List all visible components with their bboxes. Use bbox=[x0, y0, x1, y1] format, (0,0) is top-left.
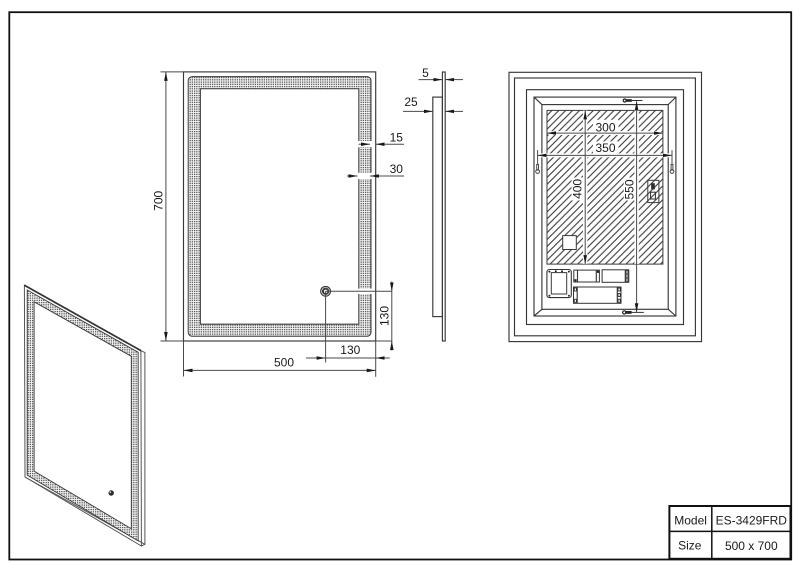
svg-text:Model: Model bbox=[674, 513, 707, 527]
svg-text:30: 30 bbox=[390, 162, 404, 176]
svg-text:400: 400 bbox=[571, 179, 585, 199]
svg-text:300: 300 bbox=[595, 121, 615, 135]
svg-text:5: 5 bbox=[422, 66, 429, 80]
svg-text:700: 700 bbox=[151, 190, 165, 210]
svg-text:130: 130 bbox=[340, 343, 360, 357]
svg-text:ES-3429FRD: ES-3429FRD bbox=[716, 514, 788, 528]
svg-text:130: 130 bbox=[378, 306, 392, 326]
svg-text:500: 500 bbox=[274, 355, 294, 369]
svg-text:15: 15 bbox=[390, 131, 404, 145]
svg-text:500 x 700: 500 x 700 bbox=[725, 539, 778, 553]
svg-text:550: 550 bbox=[623, 179, 637, 199]
svg-text:25: 25 bbox=[404, 95, 418, 109]
svg-text:350: 350 bbox=[595, 141, 615, 155]
svg-text:Size: Size bbox=[678, 539, 702, 553]
